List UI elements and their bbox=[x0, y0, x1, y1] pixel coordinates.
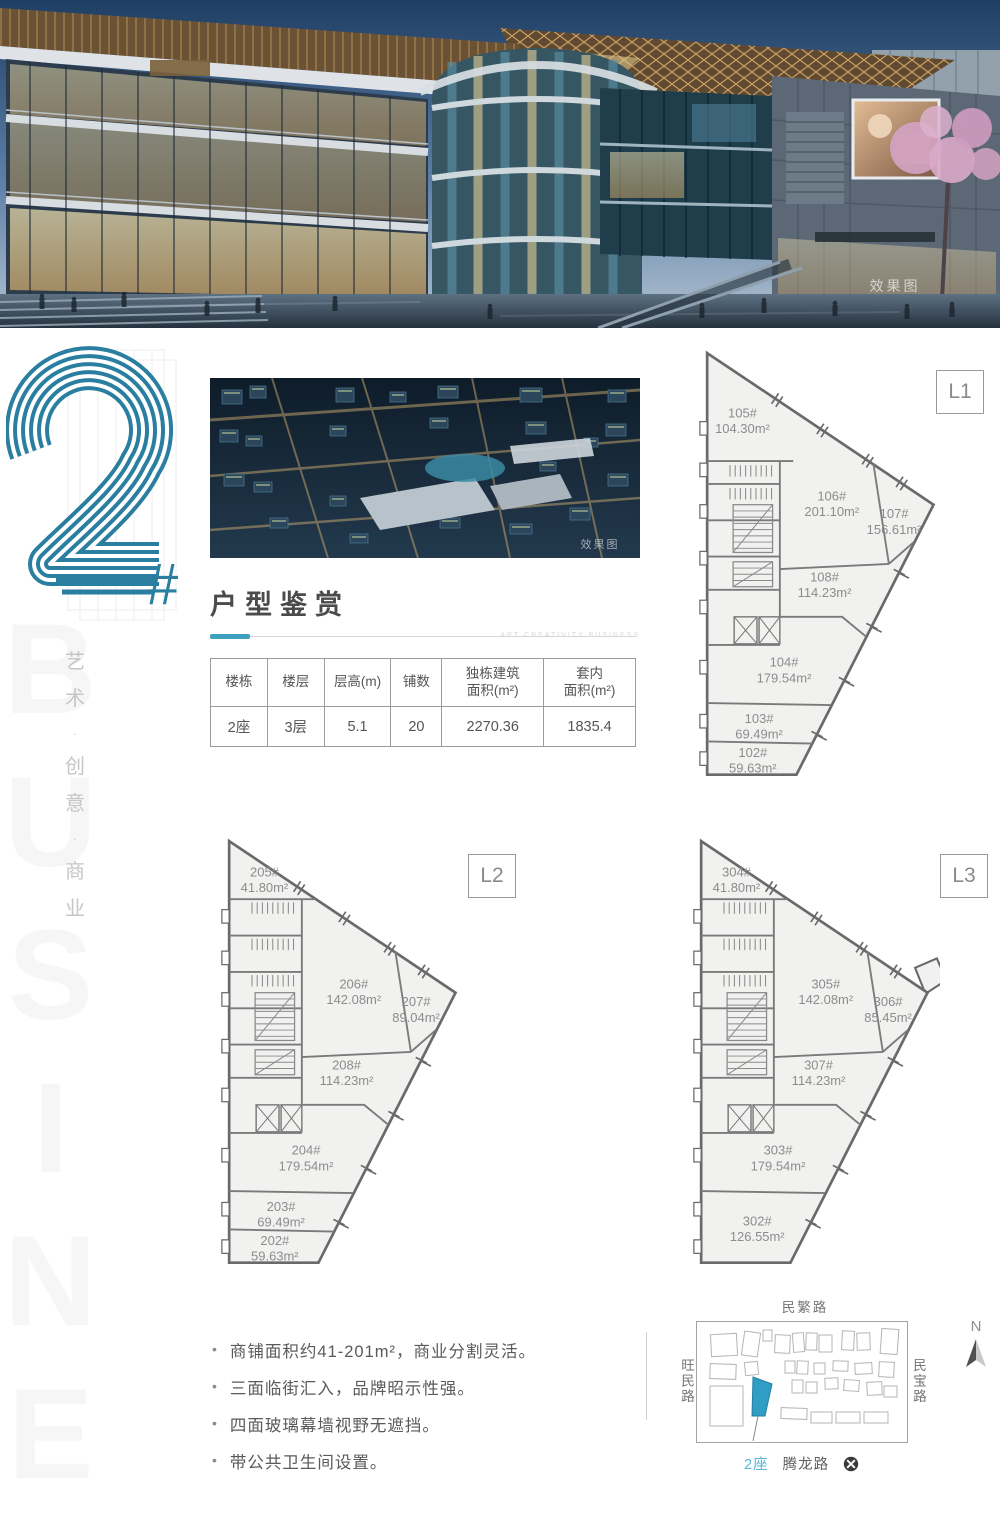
marker-pointer bbox=[753, 1416, 758, 1441]
unit-number: 105# bbox=[728, 405, 758, 420]
slogan-char: 创 bbox=[65, 757, 85, 777]
cell-floor: 3层 bbox=[267, 707, 324, 747]
compass: N bbox=[958, 1318, 994, 1373]
unit-number: 202# bbox=[260, 1233, 290, 1248]
feature-text: 四面玻璃幕墙视野无遮挡。 bbox=[230, 1412, 440, 1436]
unit-area: 179.54m² bbox=[751, 1158, 806, 1173]
unit-area: 41.80m² bbox=[241, 880, 289, 895]
unit-number: 106# bbox=[817, 489, 847, 504]
table-data-row: 2座 3层 5.1 20 2270.36 1835.4 bbox=[211, 707, 636, 747]
cell-net-area: 1835.4 bbox=[544, 707, 636, 747]
section-title: 户型鉴赏 bbox=[210, 583, 350, 622]
divider-accent bbox=[210, 634, 250, 639]
map-building bbox=[811, 1412, 832, 1423]
slogan-char: 商 bbox=[65, 862, 85, 882]
unit-area: 69.49m² bbox=[735, 726, 783, 741]
road-label-bottom: 腾龙路 bbox=[783, 1453, 830, 1474]
unit-number: 303# bbox=[764, 1143, 794, 1158]
vertical-slogan: 艺术·创意·商业 bbox=[60, 652, 90, 919]
badge-label: L2 bbox=[480, 864, 503, 888]
map-building bbox=[844, 1379, 860, 1391]
slogan-char: 术 bbox=[65, 689, 85, 709]
floor-badge-l1: L1 bbox=[936, 370, 984, 414]
unit-number: 103# bbox=[745, 711, 775, 726]
slogan-dot: · bbox=[73, 726, 78, 740]
feature-text: 带公共卫生间设置。 bbox=[230, 1449, 388, 1473]
building-2-marker-label: 2座 bbox=[744, 1453, 769, 1474]
aerial-rendering-image: 效果图 bbox=[210, 378, 640, 558]
bullet-icon: • bbox=[212, 1449, 218, 1471]
map-building bbox=[842, 1331, 855, 1351]
map-blocks bbox=[710, 1328, 899, 1426]
feature-item: •四面玻璃幕墙视野无遮挡。 bbox=[212, 1412, 536, 1436]
unit-number: 102# bbox=[738, 745, 768, 760]
header-height: 层高(m) bbox=[324, 659, 391, 707]
unit-number: 206# bbox=[339, 977, 369, 992]
unit-number: 104# bbox=[770, 655, 800, 670]
map-building bbox=[710, 1386, 743, 1426]
compass-needle-icon bbox=[963, 1336, 989, 1368]
cell-shop-count: 20 bbox=[391, 707, 442, 747]
unit-area: 142.08m² bbox=[326, 992, 381, 1007]
map-canvas bbox=[697, 1322, 907, 1442]
unit-number: 306# bbox=[874, 994, 904, 1009]
unit-area: 85.45m² bbox=[864, 1010, 912, 1025]
unit-number: 205# bbox=[250, 864, 280, 879]
unit-number: 204# bbox=[292, 1143, 322, 1158]
map-building bbox=[814, 1363, 825, 1374]
bullet-icon: • bbox=[212, 1412, 218, 1434]
unit-area: 69.49m² bbox=[257, 1214, 305, 1229]
map-building bbox=[879, 1362, 895, 1378]
slogan-dot: · bbox=[73, 831, 78, 845]
brochure-page: BUSINESS bbox=[0, 0, 1000, 1528]
map-building bbox=[741, 1331, 760, 1357]
map-caption-row: 2座 腾龙路 bbox=[744, 1453, 916, 1474]
unit-area: 179.54m² bbox=[757, 670, 812, 685]
road-label-right: 民宝路 bbox=[908, 1358, 928, 1405]
aerial-scene: 效果图 bbox=[210, 378, 640, 558]
unit-area: 89.04m² bbox=[392, 1010, 440, 1025]
building-2-logo: # bbox=[6, 342, 186, 644]
road-label-top: 民繁路 bbox=[694, 1296, 916, 1316]
header-building: 楼栋 bbox=[211, 659, 268, 707]
hero-scene: 效果图 bbox=[0, 0, 1000, 328]
map-building bbox=[836, 1412, 860, 1423]
map-building bbox=[744, 1361, 758, 1375]
table-header-row: 楼栋 楼层 层高(m) 铺数 独栋建筑 面积(m²) 套内 面积(m²) bbox=[211, 659, 636, 707]
unit-area: 114.23m² bbox=[792, 1073, 847, 1088]
feature-item: •商铺面积约41-201m²，商业分割灵活。 bbox=[212, 1338, 536, 1362]
map-building bbox=[806, 1333, 818, 1350]
unit-area: 59.63m² bbox=[729, 761, 777, 776]
building-2-highlight bbox=[752, 1377, 772, 1416]
map-building bbox=[710, 1364, 737, 1380]
unit-area: 201.10m² bbox=[804, 504, 859, 519]
plan-svg-L3: 304#41.80m²305#142.08m²306#85.45m²307#11… bbox=[670, 836, 940, 1274]
vertical-divider bbox=[646, 1332, 647, 1420]
map-building bbox=[819, 1335, 832, 1352]
unit-number: 207# bbox=[402, 994, 432, 1009]
feature-item: •带公共卫生间设置。 bbox=[212, 1449, 536, 1473]
unit-number: 203# bbox=[267, 1199, 297, 1214]
location-map: 民繁路 旺民路 民宝路 2座 腾龙路 bbox=[694, 1296, 916, 1474]
floor-plan-l1: 105#104.30m²106#201.10m²107#156.61m²108#… bbox=[676, 348, 946, 786]
feature-item: •三面临街汇入，品牌昭示性强。 bbox=[212, 1375, 536, 1399]
compass-n-label: N bbox=[958, 1318, 994, 1335]
map-building bbox=[797, 1361, 809, 1375]
header-gross-area: 独栋建筑 面积(m²) bbox=[442, 659, 544, 707]
badge-label: L1 bbox=[948, 380, 971, 404]
unit-number: 107# bbox=[880, 506, 910, 521]
floor-badge-l2: L2 bbox=[468, 854, 516, 898]
cell-gross-area: 2270.36 bbox=[442, 707, 544, 747]
slogan-char: 意 bbox=[65, 794, 85, 814]
map-building bbox=[857, 1333, 871, 1350]
slogan-char: 艺 bbox=[65, 652, 85, 672]
map-building bbox=[825, 1378, 838, 1389]
unit-area: 104.30m² bbox=[715, 421, 770, 436]
header-shop-count: 铺数 bbox=[391, 659, 442, 707]
unit-spec-table: 楼栋 楼层 层高(m) 铺数 独栋建筑 面积(m²) 套内 面积(m²) 2座 … bbox=[210, 658, 636, 747]
map-building bbox=[792, 1380, 803, 1393]
unit-number: 302# bbox=[743, 1213, 773, 1228]
unit-number: 305# bbox=[811, 977, 841, 992]
unit-area: 114.23m² bbox=[320, 1073, 375, 1088]
metro-icon bbox=[843, 1456, 859, 1472]
header-net-area: 套内 面积(m²) bbox=[544, 659, 636, 707]
slogan-char: 业 bbox=[65, 899, 85, 919]
road-label-left: 旺民路 bbox=[676, 1358, 696, 1405]
unit-area: 114.23m² bbox=[798, 585, 853, 600]
map-building bbox=[792, 1333, 804, 1353]
background-watermark-text: BUSINESS bbox=[0, 598, 114, 1528]
plan-svg-L1: 105#104.30m²106#201.10m²107#156.61m²108#… bbox=[676, 348, 946, 786]
map-building bbox=[775, 1335, 791, 1354]
unit-area: 126.55m² bbox=[730, 1229, 785, 1244]
left-building bbox=[6, 59, 428, 303]
bullet-icon: • bbox=[212, 1375, 218, 1397]
hero-rendering-image: 效果图 bbox=[0, 0, 1000, 328]
unit-area: 142.08m² bbox=[798, 992, 853, 1007]
header-floor: 楼层 bbox=[267, 659, 324, 707]
divider-caption: ART CREATIVITY BUSINESS bbox=[500, 632, 640, 639]
map-building bbox=[867, 1382, 883, 1396]
map-building bbox=[833, 1361, 848, 1372]
logo-number-strokes bbox=[27, 368, 159, 592]
unit-number: 304# bbox=[722, 864, 752, 879]
floor-plan-l3: 304#41.80m²305#142.08m²306#85.45m²307#11… bbox=[670, 836, 940, 1274]
hero-watermark-label: 效果图 bbox=[870, 278, 921, 294]
unit-number: 208# bbox=[332, 1058, 362, 1073]
map-building bbox=[781, 1408, 807, 1420]
aerial-watermark-label: 效果图 bbox=[581, 537, 620, 551]
floor-badge-l3: L3 bbox=[940, 854, 988, 898]
unit-area: 179.54m² bbox=[279, 1158, 334, 1173]
cell-building: 2座 bbox=[211, 707, 268, 747]
map-building bbox=[785, 1361, 795, 1373]
map-building bbox=[864, 1412, 888, 1423]
bullet-icon: • bbox=[212, 1338, 218, 1360]
unit-area: 41.80m² bbox=[713, 880, 761, 895]
unit-number: 108# bbox=[810, 570, 840, 585]
map-building bbox=[763, 1330, 772, 1341]
section-divider: ART CREATIVITY BUSINESS bbox=[210, 634, 636, 640]
unit-area: 156.61m² bbox=[867, 522, 922, 537]
unit-area: 59.63m² bbox=[251, 1249, 299, 1264]
map-building bbox=[855, 1363, 873, 1375]
badge-label: L3 bbox=[952, 864, 975, 888]
logo-2-art: # bbox=[6, 342, 186, 644]
center-glass-building bbox=[600, 88, 772, 260]
feature-text: 三面临街汇入，品牌昭示性强。 bbox=[230, 1375, 475, 1399]
unit-number: 307# bbox=[804, 1058, 834, 1073]
cell-height: 5.1 bbox=[324, 707, 391, 747]
logo-hash-suffix: # bbox=[146, 552, 178, 617]
plan-svg-L2: 205#41.80m²206#142.08m²207#89.04m²208#11… bbox=[198, 836, 468, 1274]
feature-text: 商铺面积约41-201m²，商业分割灵活。 bbox=[230, 1338, 536, 1362]
feature-list: •商铺面积约41-201m²，商业分割灵活。•三面临街汇入，品牌昭示性强。•四面… bbox=[212, 1338, 536, 1486]
map-building bbox=[710, 1333, 737, 1356]
floor-plan-l2: 205#41.80m²206#142.08m²207#89.04m²208#11… bbox=[198, 836, 468, 1274]
map-building bbox=[806, 1382, 817, 1393]
map-building bbox=[884, 1386, 897, 1397]
map-box: 旺民路 民宝路 bbox=[696, 1321, 908, 1443]
map-building bbox=[880, 1328, 899, 1354]
